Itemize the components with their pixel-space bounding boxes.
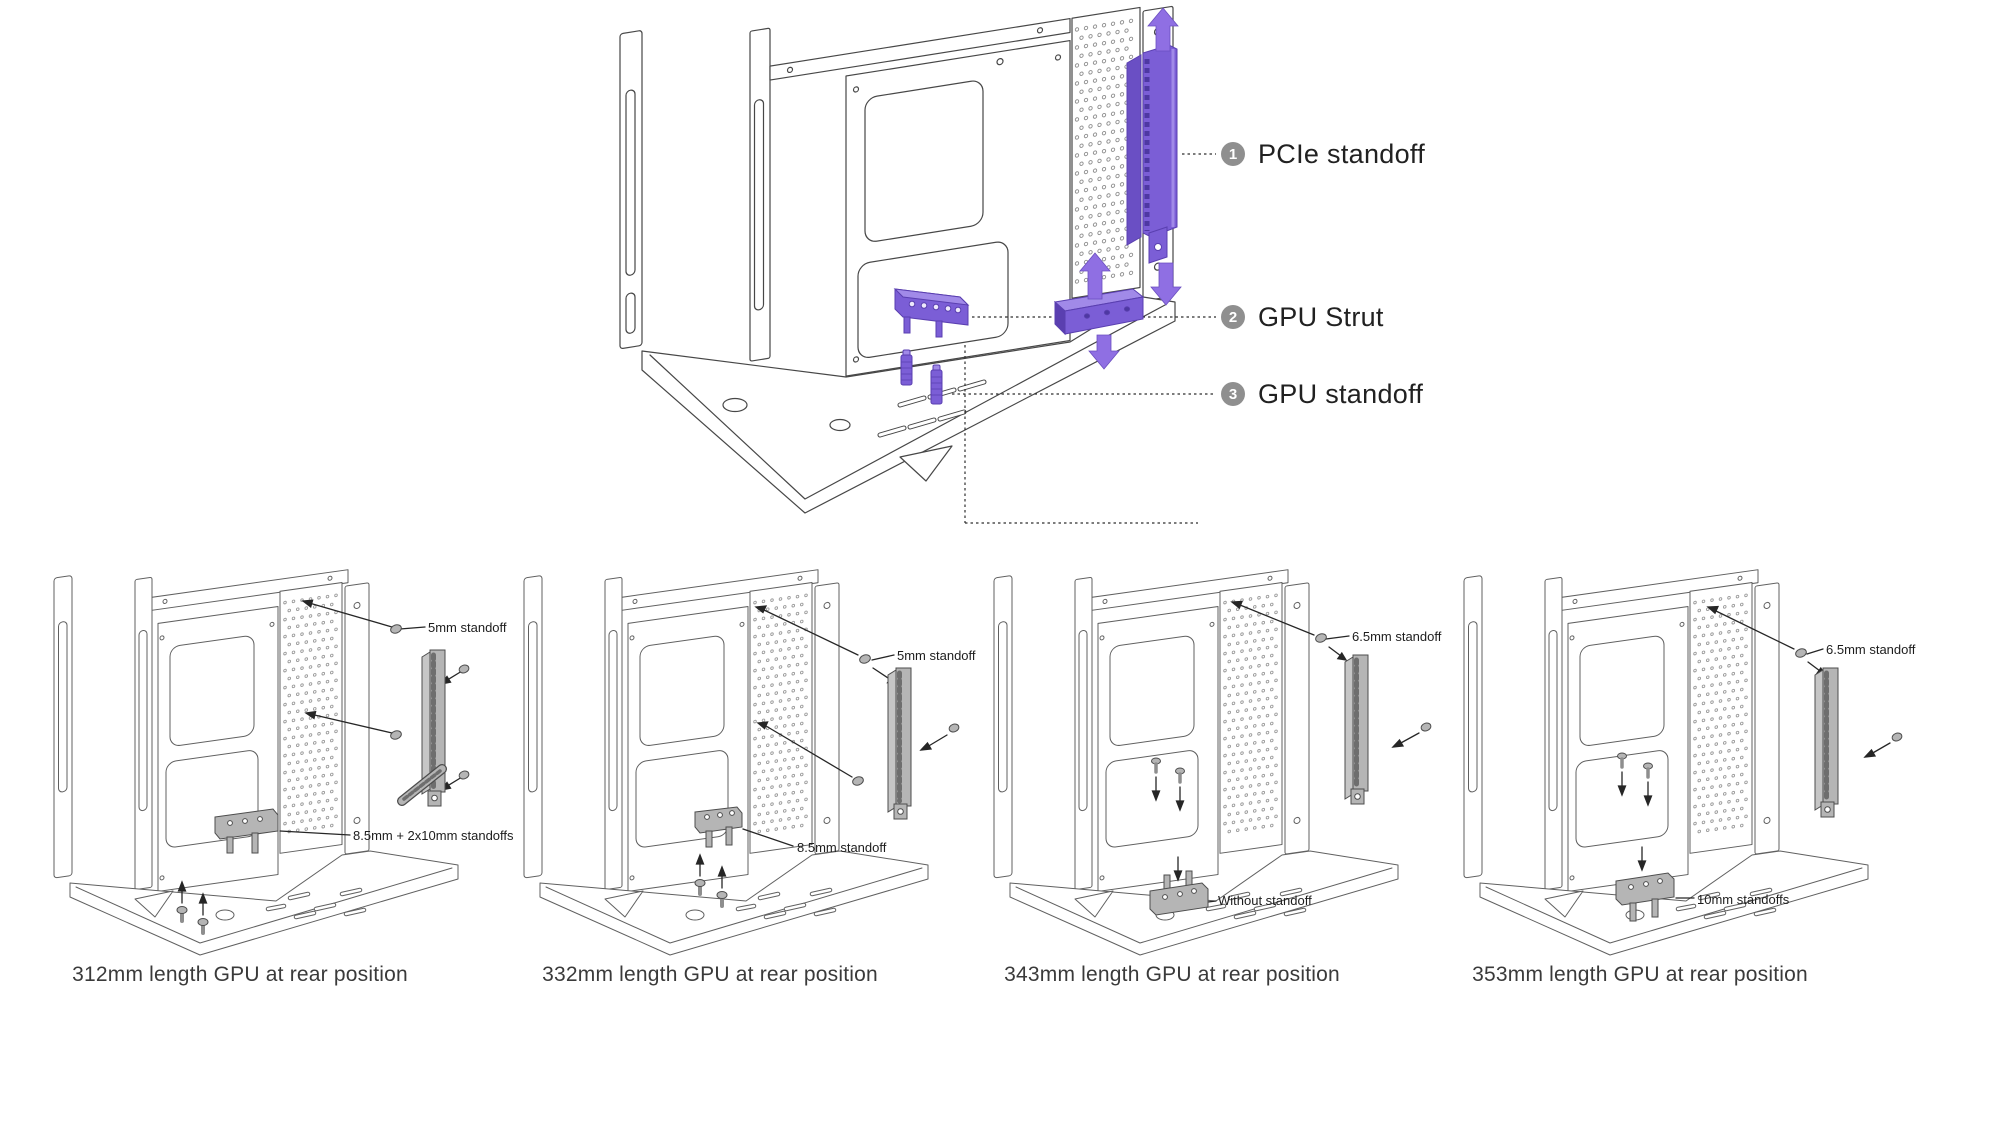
case-diagram-353mm [1450, 565, 1910, 965]
pcie-bracket-gray [1345, 655, 1368, 804]
standoff-label-bottom: Without standoff [1218, 893, 1312, 908]
variant-312mm: 5mm standoff 8.5mm + 2x10mm standoffs [40, 565, 500, 965]
screw-icon [1794, 647, 1903, 742]
main-case-diagram [600, 5, 1240, 540]
standoff-label-bottom: 8.5mm standoff [797, 840, 886, 855]
variant-343mm: 6.5mm standoff Without standoff [980, 565, 1440, 965]
small-case-line-art [54, 565, 458, 955]
screw-icon [1314, 632, 1432, 732]
variant-caption: 353mm length GPU at rear position [1472, 963, 1808, 987]
standoff-label-top: 6.5mm standoff [1352, 629, 1441, 644]
variant-332mm: 5mm standoff 8.5mm standoff [510, 565, 970, 965]
case-diagram-343mm [980, 565, 1440, 965]
standoff-label-top: 5mm standoff [897, 648, 976, 663]
pcie-bracket-gray [1815, 668, 1838, 817]
variant-353mm: 6.5mm standoff 10mm standoffs [1450, 565, 1910, 965]
callout-number-badge: 1 [1221, 142, 1245, 166]
gpu-installation-diagram: 1 PCIe standoff 2 GPU Strut 3 GPU stando… [0, 0, 2000, 1125]
pcie-standoff-part [1127, 45, 1177, 263]
variant-caption: 343mm length GPU at rear position [1004, 963, 1340, 987]
pcie-bracket-gray [888, 668, 911, 819]
callout-label: GPU Strut [1258, 302, 1384, 333]
callout-gpu-standoff: 3 GPU standoff [1221, 377, 1423, 411]
variant-caption: 312mm length GPU at rear position [72, 963, 408, 987]
callout-pcie-standoff: 1 PCIe standoff [1221, 137, 1425, 171]
callout-number-badge: 3 [1221, 382, 1245, 406]
standoff-label-top: 5mm standoff [428, 620, 507, 635]
standoff-label-bottom: 10mm standoffs [1697, 892, 1789, 907]
case-diagram-332mm [510, 565, 970, 965]
callout-label: PCIe standoff [1258, 139, 1425, 170]
variant-caption: 332mm length GPU at rear position [542, 963, 878, 987]
standoff-label-top: 6.5mm standoff [1826, 642, 1915, 657]
callout-label: GPU standoff [1258, 379, 1423, 410]
callout-gpu-strut: 2 GPU Strut [1221, 300, 1384, 334]
callout-number-badge: 2 [1221, 305, 1245, 329]
standoff-label-bottom: 8.5mm + 2x10mm standoffs [353, 828, 514, 843]
